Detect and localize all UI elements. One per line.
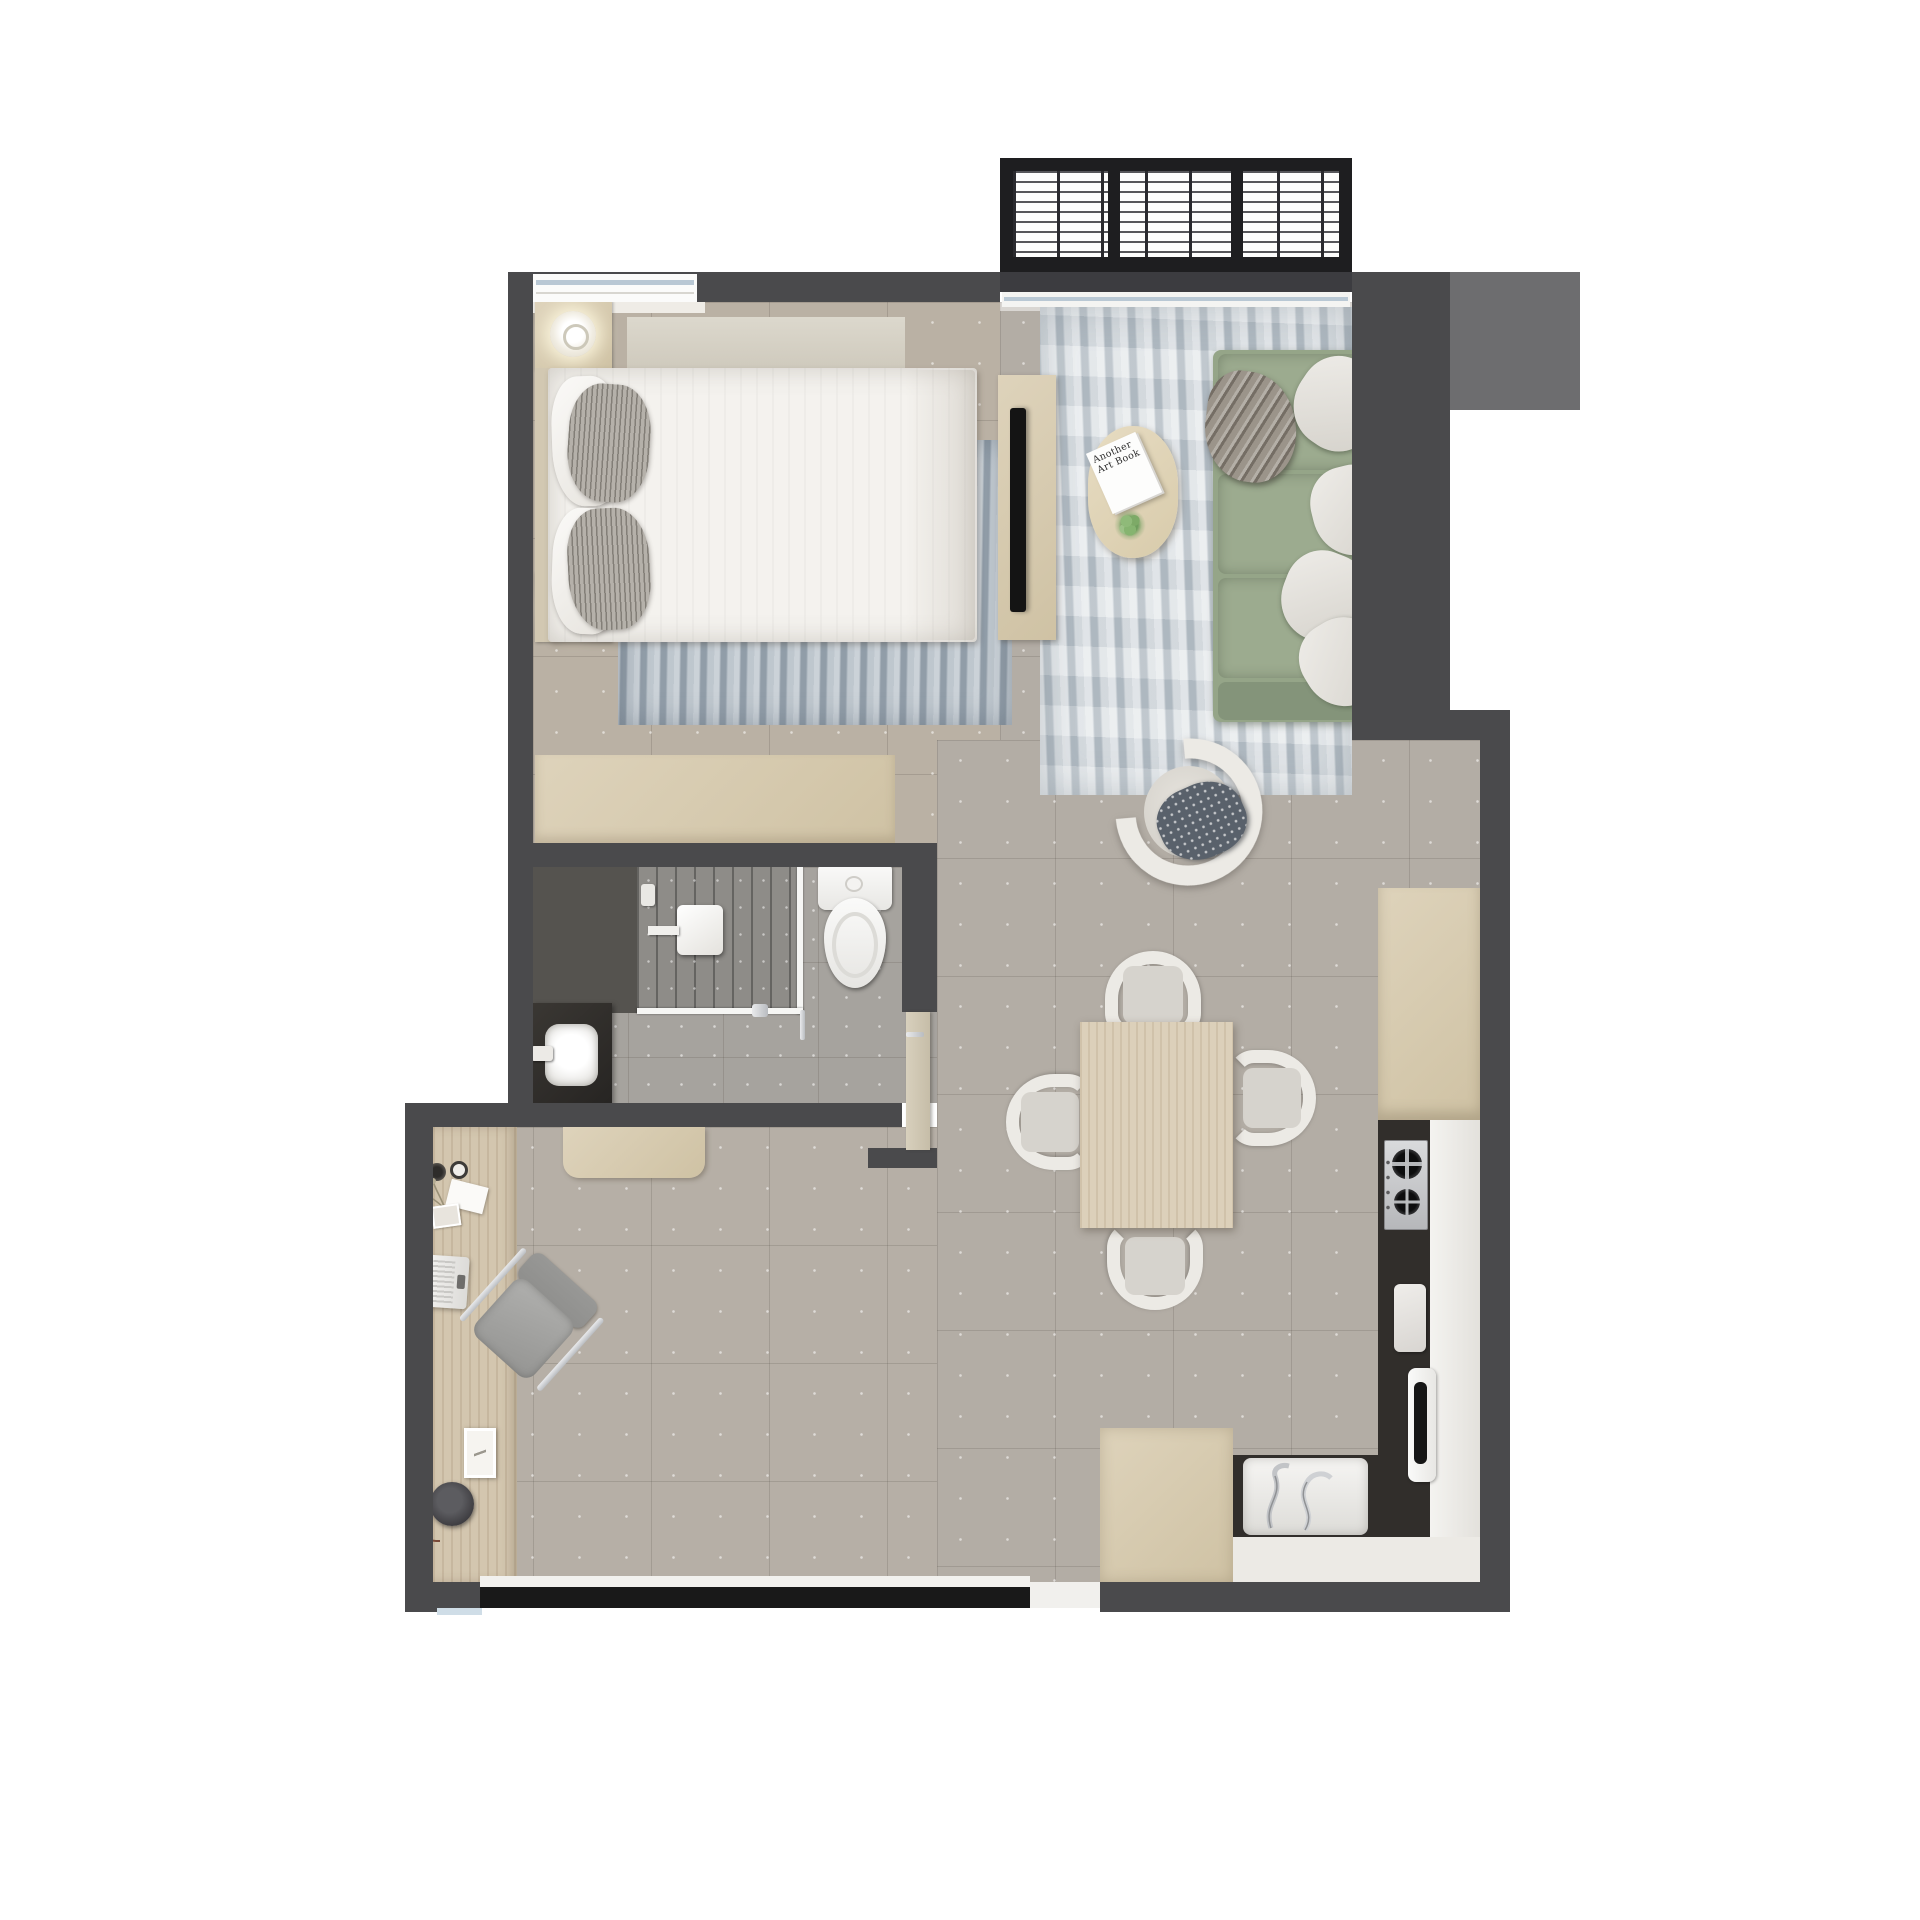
headboard <box>627 317 905 368</box>
balcony-railing <box>1000 158 1352 272</box>
balcony-door-sill <box>1002 292 1350 307</box>
sink-faucet-black <box>1414 1382 1427 1464</box>
armchair <box>1116 738 1262 886</box>
right-wall-lower <box>1480 740 1510 1612</box>
bottom-door-sill <box>480 1576 1030 1587</box>
floor-plan: Another Art Book <box>0 0 1920 1920</box>
dining-chair-right <box>1228 1050 1316 1146</box>
shower-mixer-bar <box>800 1010 805 1040</box>
plant <box>1112 506 1148 544</box>
photo <box>431 1203 462 1229</box>
exterior-block <box>1450 272 1580 410</box>
rain-shower-head <box>677 905 723 955</box>
island-cabinet <box>1100 1428 1233 1582</box>
shower-niche <box>533 867 642 1013</box>
pillow-striped-2 <box>565 506 653 632</box>
frame-sketch <box>474 1441 486 1465</box>
hob-burner-2 <box>1394 1189 1420 1215</box>
window-frame-line <box>536 292 694 294</box>
table-lamp-top <box>550 311 596 357</box>
toilet <box>815 860 895 992</box>
chair-seat <box>1123 966 1183 1024</box>
bottom-door-glass-hint <box>437 1608 482 1615</box>
bathroom-right-wall <box>902 843 937 1012</box>
balcony-glass-line <box>1004 297 1348 301</box>
dresser <box>535 755 895 843</box>
window-glass-line <box>536 280 694 285</box>
gas-hob <box>1384 1140 1428 1230</box>
door-handle <box>906 1032 924 1037</box>
console-bench <box>563 1127 705 1178</box>
chair-seat <box>1243 1068 1301 1128</box>
bedroom-window <box>533 274 697 302</box>
railing-divider-1 <box>1108 171 1120 257</box>
picture-frame <box>464 1428 496 1478</box>
railing-divider-2 <box>1231 171 1243 257</box>
hose-lines-icon <box>1243 1458 1368 1535</box>
duvet-fold <box>905 370 975 640</box>
toilet-seat-ring <box>832 912 878 978</box>
shower-arm <box>648 926 679 935</box>
toilet-flush-button <box>845 876 863 892</box>
balcony-threshold <box>1000 272 1352 292</box>
dining-chair-bottom <box>1107 1222 1203 1310</box>
hob-burner-1 <box>1392 1149 1422 1179</box>
shower-glass-bottom <box>637 1008 803 1014</box>
tv-console <box>998 375 1056 640</box>
tv <box>1010 408 1026 612</box>
top-wall-right <box>1352 272 1450 302</box>
bathroom-bottom-wall <box>405 1103 902 1127</box>
dining-table <box>1080 1022 1233 1228</box>
nook-left-wall <box>405 1103 433 1612</box>
chair-seat <box>1125 1237 1185 1295</box>
shower-door-handle <box>752 1004 768 1017</box>
basin-faucet <box>531 1046 553 1061</box>
kitchen-tall-cabinet <box>1378 888 1480 1120</box>
kitchen-counter-white <box>1430 1120 1480 1582</box>
door-stub-wall <box>868 1148 937 1168</box>
shower-valve <box>641 884 655 906</box>
shower-glass-vertical <box>797 867 803 1014</box>
chair-seat <box>1021 1092 1079 1152</box>
laptop-trackpad <box>457 1275 466 1290</box>
bottom-sliding-door <box>480 1587 1030 1608</box>
hob-knobs <box>1386 1155 1390 1215</box>
bottom-door-frame-piece <box>1030 1582 1100 1608</box>
bottom-wall-right <box>1100 1582 1510 1612</box>
laptop-keyboard <box>431 1260 456 1303</box>
left-wall <box>508 272 533 1127</box>
bathroom-top-wall <box>508 843 937 867</box>
washing-machine <box>1243 1458 1368 1535</box>
cutting-board <box>1394 1284 1426 1352</box>
right-wall-upper <box>1352 302 1450 740</box>
kitchen-floor-strip <box>1233 1537 1480 1582</box>
right-wall-step <box>1450 710 1510 740</box>
